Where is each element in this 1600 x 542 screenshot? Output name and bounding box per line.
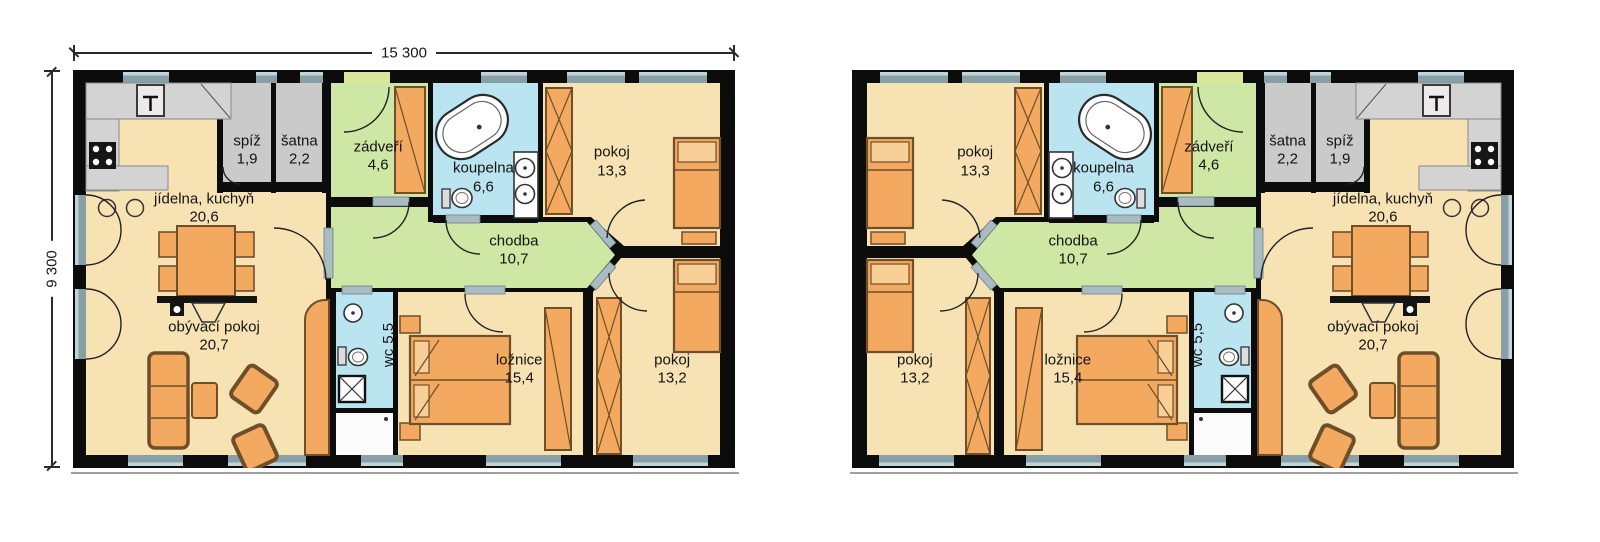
floorplan-canvas: 15 300 9 300	[0, 0, 1600, 542]
single-bed-icon	[867, 138, 913, 244]
dimension-height-label: 9 300	[44, 241, 61, 297]
single-bed-icon	[867, 260, 913, 352]
entry-door	[1197, 72, 1243, 83]
dimension-width: 15 300	[73, 45, 735, 61]
corner-unit-icon	[1258, 300, 1282, 455]
floor-plan-right-mirrored: jídelna, kuchyň20,6spíž1,9šatna2,2zádveř…	[852, 70, 1514, 468]
wardrobe-icon	[545, 308, 571, 450]
tech-room-dot	[1199, 417, 1203, 421]
dimension-width-label: 15 300	[372, 45, 436, 62]
ground-shadow-line	[71, 472, 739, 474]
wardrobe-icon	[966, 298, 990, 454]
dimension-height: 9 300	[44, 70, 60, 468]
hob-icon	[89, 142, 116, 169]
coffee-table-icon	[192, 383, 217, 418]
washing-machine-icon	[339, 376, 365, 402]
wc-toilet-icon	[1220, 347, 1250, 366]
toilet-icon	[442, 189, 472, 209]
wardrobe-icon	[1162, 87, 1192, 193]
ground-shadow-line	[850, 472, 1518, 474]
wardrobe-icon	[597, 298, 621, 454]
sofa-icon	[149, 353, 188, 448]
kitchen-sink-icon	[1423, 85, 1450, 116]
wardrobe-icon	[395, 87, 425, 193]
floor-plan-svg	[852, 70, 1514, 468]
kitchen-sink-icon	[137, 85, 164, 116]
double-sink-icon	[1049, 152, 1073, 218]
toilet-icon	[1115, 189, 1145, 209]
wardrobe-icon	[546, 88, 572, 214]
wardrobe-icon	[1016, 308, 1042, 450]
corner-unit-icon	[305, 300, 329, 455]
hob-icon	[1471, 142, 1498, 169]
double-sink-icon	[514, 152, 538, 218]
wc-sink-icon	[1225, 304, 1243, 322]
room-chodba	[331, 222, 615, 288]
floor-plan-left: jídelna, kuchyň20,6spíž1,9šatna2,2zádveř…	[73, 70, 735, 468]
single-bed-icon	[674, 260, 720, 352]
room-satna	[1264, 83, 1311, 184]
entry-door	[344, 72, 390, 83]
coffee-table-icon	[1370, 383, 1395, 418]
wardrobe-icon	[1015, 88, 1041, 214]
sofa-icon	[1399, 353, 1438, 448]
washing-machine-icon	[1222, 376, 1248, 402]
tech-room-dot	[384, 417, 388, 421]
room-chodba	[972, 222, 1256, 288]
plan-graphic	[852, 70, 1514, 468]
wc-toilet-icon	[338, 347, 368, 366]
floor-plan-svg	[73, 70, 735, 468]
single-bed-icon	[674, 138, 720, 244]
room-satna	[276, 83, 323, 184]
plan-graphic	[73, 70, 735, 468]
wc-sink-icon	[344, 304, 362, 322]
